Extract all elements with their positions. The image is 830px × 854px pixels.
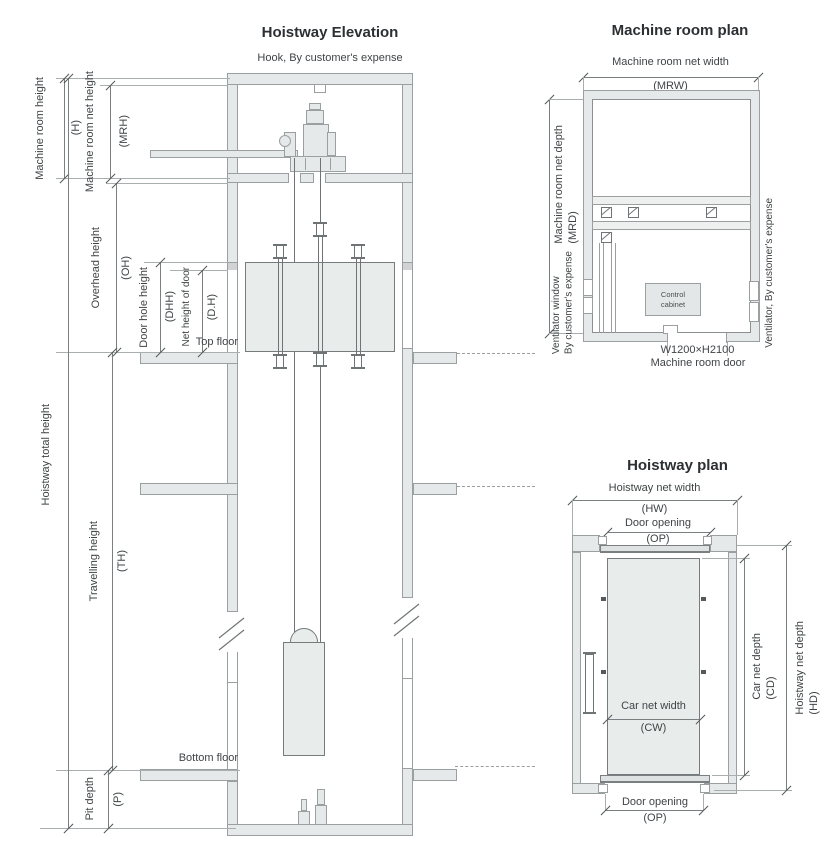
- guide-shoe: [601, 670, 606, 674]
- anchor-hole: [601, 207, 612, 218]
- control-cabinet: Controlcabinet: [645, 283, 701, 316]
- hook-note: Hook, By customer's expense: [215, 52, 445, 65]
- dim-label-hd: Hoistway net depth(HD): [792, 545, 824, 790]
- dim-line-op-bottom: [605, 810, 703, 811]
- buffer-stem: [317, 789, 325, 805]
- floor-level-dashed-line: [455, 766, 535, 767]
- dim-label-pit-depth: Pit depth: [84, 770, 98, 828]
- dim-label-travelling-height: Travelling height: [88, 352, 102, 770]
- ventilator-window: [583, 297, 593, 314]
- anchor-hole: [628, 207, 639, 218]
- buffer: [298, 811, 310, 825]
- counterweight-plan: [585, 654, 594, 713]
- rail-bracket: [351, 244, 365, 259]
- rail-bracket: [273, 354, 287, 369]
- ventilator: [749, 302, 759, 322]
- bedplate-slot: [305, 158, 306, 170]
- dim-abbr-p: (P): [112, 770, 126, 828]
- counterweight-cap: [583, 652, 596, 654]
- door-jamb: [703, 536, 712, 545]
- dim-line-overhead-height: [116, 183, 117, 352]
- top-floor-slab-left: [140, 352, 238, 364]
- hoistway-side-wall: [728, 552, 737, 794]
- guide-rail-line: [599, 243, 600, 333]
- car-guide-rail: [282, 259, 283, 354]
- top-floor-line: [56, 352, 240, 353]
- dim-label-machine-room-net-height: Machine room net height: [84, 85, 98, 178]
- dim-line-pit-depth: [108, 770, 109, 828]
- mid-floor-slab-left: [140, 483, 238, 495]
- machine-body: [303, 124, 329, 157]
- dim-abbr-cw: (CW): [609, 722, 698, 735]
- rope-hitch: [313, 352, 327, 367]
- counterweight-rope: [294, 158, 295, 632]
- dim-label-cw: Car net width: [609, 700, 698, 713]
- door-header-line: [402, 678, 413, 679]
- car-guide-rail: [360, 259, 361, 354]
- elevator-layout-drawing: Hoistway Elevation Hook, By customer's e…: [0, 0, 830, 854]
- guide-shoe: [701, 597, 706, 601]
- machine-room-door-opening: [667, 333, 727, 343]
- mid-floor-slab-right: [413, 483, 457, 495]
- dim-line-travelling-height: [112, 352, 113, 770]
- car-rope: [320, 158, 321, 222]
- door-jamb: [700, 784, 710, 793]
- guide-shoe: [601, 597, 606, 601]
- bedplate-slot: [330, 158, 331, 170]
- hoistway-plan-title: Hoistway plan: [585, 457, 770, 474]
- ventilator-note: Ventilator, By customer's expense: [762, 178, 778, 368]
- left-wall-segment: [227, 352, 238, 612]
- machine-motor: [306, 110, 324, 124]
- dim-abbr-h: (H): [70, 78, 84, 178]
- dim-abbr-th: (TH): [116, 352, 130, 770]
- dim-abbr-op-bottom: (OP): [590, 812, 720, 825]
- dim-line-machine-room-net-height: [110, 85, 111, 178]
- pit-floor-slab: [227, 824, 413, 836]
- rail-bracket: [273, 244, 287, 259]
- counterweight-guide-rail: [320, 367, 321, 642]
- door-jamb: [598, 536, 607, 545]
- dim-label-hw: Hoistway net width: [572, 482, 737, 495]
- rail-bracket: [351, 354, 365, 369]
- landing-door-sill: [600, 775, 710, 783]
- machine-room-plan-title: Machine room plan: [580, 22, 780, 39]
- dim-abbr-mrh: (MRH): [118, 85, 132, 178]
- door-header-line: [227, 682, 238, 683]
- dim-line-machine-room-height: [64, 78, 65, 178]
- ventilator-window: [583, 279, 593, 296]
- elevation-title: Hoistway Elevation: [205, 24, 455, 41]
- machine-room-door-size: W1200×H2100: [645, 344, 750, 357]
- car-rope-line: [318, 237, 319, 352]
- door-opening-band: [402, 270, 413, 348]
- car-guide-rail: [278, 259, 279, 354]
- elevator-car: [245, 262, 395, 352]
- top-floor-slab-right: [413, 352, 457, 364]
- buffer: [315, 805, 327, 825]
- dim-abbr-hw: (HW): [572, 503, 737, 516]
- landing-door-sill: [600, 545, 710, 553]
- dim-line-mrw: [583, 77, 758, 78]
- machine-beam-plan: [592, 196, 751, 205]
- door-jamb: [598, 784, 608, 793]
- dim-label-op-top: Door opening: [588, 517, 728, 530]
- dim-line-cd: [744, 558, 745, 775]
- door-opening-band: [402, 638, 413, 768]
- dim-label-mrw: Machine room net width: [583, 56, 758, 69]
- buffer-stem: [301, 799, 307, 811]
- guide-rail-line: [603, 243, 604, 333]
- machine-bedplate: [290, 156, 346, 172]
- wall-break-symbol: [391, 596, 423, 640]
- dim-line-hoistway-total-height: [68, 78, 69, 828]
- machine-beam: [150, 150, 298, 158]
- dim-label-machine-room-height: Machine room height: [34, 78, 48, 178]
- car-guide-rail: [356, 259, 357, 354]
- floor-level-dashed-line: [457, 353, 535, 354]
- dim-line-hw: [572, 500, 737, 501]
- anchor-hole: [601, 232, 612, 243]
- extension-line: [56, 178, 230, 179]
- counterweight: [283, 642, 325, 756]
- floor-level-dashed-line: [457, 486, 535, 487]
- dim-line-hd: [786, 545, 787, 790]
- counterweight-cap: [583, 712, 596, 714]
- machine-beam-plan: [592, 221, 751, 230]
- bottom-floor-label: Bottom floor: [146, 752, 238, 765]
- anchor-hole: [706, 207, 717, 218]
- machine-gearbox: [327, 132, 336, 156]
- machine-motor-cap: [309, 103, 321, 110]
- right-wall-segment: [402, 348, 413, 598]
- rope-hitch: [313, 222, 327, 237]
- ventilator-window-note: Ventilator windowBy customer's expense: [546, 240, 580, 365]
- wall-break-symbol: [216, 610, 248, 654]
- dim-label-hoistway-total-height: Hoistway total height: [40, 300, 54, 610]
- guide-rail-line: [611, 243, 612, 333]
- hook: [314, 84, 326, 93]
- dim-line-cw: [607, 719, 700, 720]
- machine-room-door-label: Machine room door: [638, 357, 758, 370]
- car-rope-line: [322, 237, 323, 352]
- dim-label-overhead-height: Overhead height: [90, 183, 104, 352]
- car-plan: [607, 558, 700, 775]
- bottom-floor-slab-right: [413, 769, 457, 781]
- guide-shoe: [701, 670, 706, 674]
- deflector-sheave: [279, 135, 291, 147]
- top-floor-label: Top floor: [150, 336, 238, 349]
- guide-rail-line: [615, 243, 616, 333]
- hoistway-side-wall: [572, 552, 581, 794]
- ventilator: [749, 281, 759, 301]
- dim-label-cd: Car net depth(CD): [750, 558, 780, 775]
- dim-abbr-oh: (OH): [120, 183, 134, 352]
